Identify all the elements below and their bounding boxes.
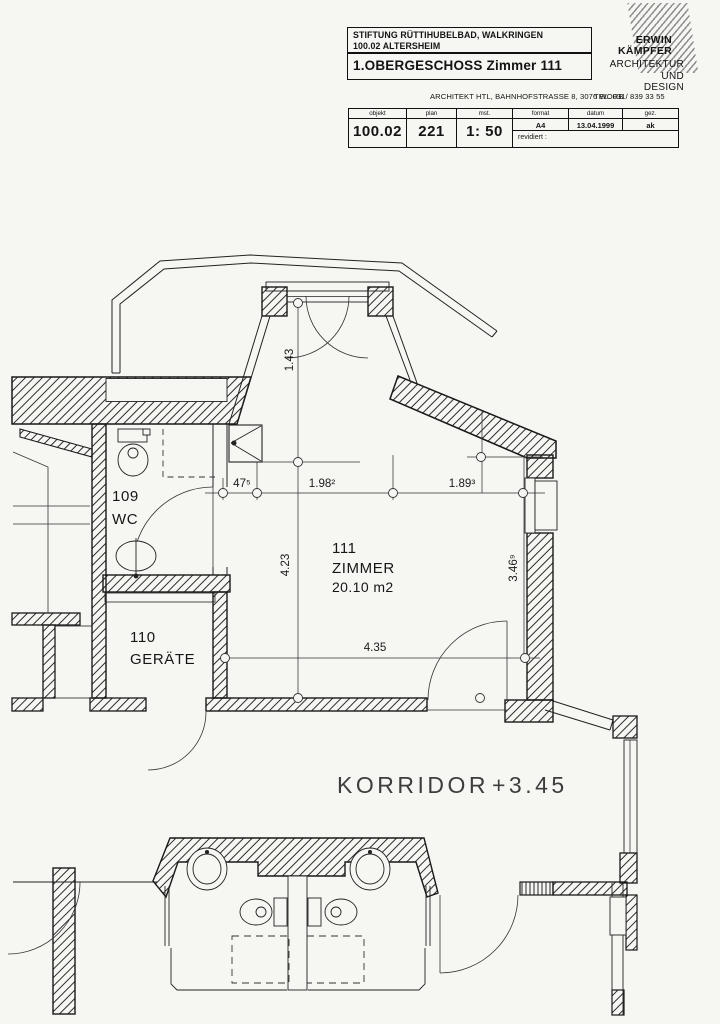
dim-bay-depth: 1.43 — [283, 349, 296, 372]
corridor-label: KORRIDOR — [337, 772, 489, 798]
right-wall — [390, 376, 557, 722]
header-mst: mst. — [457, 109, 513, 119]
drawing-title-box: 1.OBERGESCHOSS Zimmer 111 — [347, 52, 592, 80]
bathroom-divider — [288, 876, 307, 990]
shower-dashed — [307, 936, 364, 983]
wall-corner-block — [505, 700, 553, 722]
value-datum: 13.04.1999 — [569, 119, 623, 131]
shaft — [55, 626, 92, 698]
wc-left-wall — [92, 424, 106, 698]
value-objekt: 100.02 — [349, 119, 407, 147]
architect-field: ARCHITEKTUR UND DESIGN — [610, 59, 684, 94]
header-plan: plan — [407, 109, 457, 119]
value-plan: 221 — [407, 119, 457, 147]
drawing-title: 1.OBERGESCHOSS Zimmer 111 — [353, 58, 591, 73]
corridor-door-swing — [440, 895, 518, 973]
corridor-window — [624, 740, 637, 853]
window-frame — [535, 481, 557, 530]
bay-door-swing-right — [306, 296, 368, 358]
project-line2: 100.02 ALTERSHEIM — [353, 41, 591, 52]
room-name-wc: WC — [112, 511, 138, 528]
room-number-wc: 109 — [112, 488, 139, 505]
room-geraete — [12, 592, 427, 770]
room-number-zimmer: 111 — [332, 540, 357, 557]
wc-lintel — [106, 379, 227, 402]
value-format: A4 — [513, 119, 569, 131]
toilet — [240, 898, 287, 926]
room-number-geraete: 110 — [130, 629, 156, 646]
header-gez: gez. — [623, 109, 678, 119]
threshold — [520, 882, 553, 895]
bottom-wall — [206, 698, 427, 711]
window-glazing — [525, 478, 535, 533]
corridor-level: +3.45 — [492, 772, 568, 798]
shower-dashed — [232, 936, 289, 983]
dim-depth-right: 3.46⁹ — [507, 554, 520, 582]
shower-dashed — [163, 429, 215, 477]
architect-phone: TEL. 031/ 839 33 55 — [594, 92, 665, 101]
toilet — [308, 898, 357, 926]
room-name-geraete: GERÄTE — [130, 651, 195, 668]
bay-window — [229, 282, 417, 424]
bathroom-block — [153, 838, 438, 990]
neighbour-lines — [13, 452, 90, 613]
left-pier — [53, 868, 75, 1014]
architect-name: ERWIN KÄMPFER — [618, 35, 672, 57]
corridor-right — [440, 700, 637, 1015]
header-objekt: objekt — [349, 109, 407, 119]
wc-right-wall — [213, 424, 227, 575]
revised-label: revidiert : — [513, 131, 678, 147]
diagonal-wall — [390, 376, 556, 458]
dim-chain-c: 1.89³ — [449, 477, 476, 490]
geraete-right-wall — [213, 592, 227, 698]
toilet — [118, 429, 150, 476]
sink — [187, 848, 227, 890]
bay-side-walls — [229, 316, 417, 424]
architect-name-line2: KÄMPFER — [618, 46, 672, 57]
sink — [350, 848, 390, 890]
corridor-left — [8, 868, 157, 1014]
dim-chain-b: 1.98² — [309, 477, 336, 490]
project-info-box: STIFTUNG RÜTTIHUBELBAD, WALKRINGEN 100.0… — [347, 27, 592, 54]
sink — [116, 538, 156, 578]
room-area-zimmer: 20.10 m2 — [332, 579, 394, 595]
geraete-door-swing — [148, 712, 206, 770]
bay-jamb-right — [368, 287, 393, 316]
title-block: ERWIN KÄMPFER ARCHITEKTUR UND DESIGN STI… — [0, 0, 720, 160]
dim-depth-left: 4.23 — [279, 554, 292, 577]
project-line1: STIFTUNG RÜTTIHUBELBAD, WALKRINGEN — [353, 30, 591, 41]
value-mst: 1: 50 — [457, 119, 513, 147]
header-datum: datum — [569, 109, 623, 119]
room-name-zimmer: ZIMMER — [332, 560, 395, 577]
info-table: objekt plan mst. format datum gez. 100.0… — [348, 108, 679, 148]
zimmer-door-swing — [428, 621, 507, 700]
value-gez: ak — [623, 119, 678, 131]
wc-bottom-wall — [103, 575, 230, 592]
bay-jamb-left — [262, 287, 287, 316]
zimmer-door — [428, 621, 507, 700]
dim-width-bottom: 4.35 — [364, 641, 387, 654]
header-format: format — [513, 109, 569, 119]
dim-chain-a: 47⁵ — [233, 477, 251, 490]
wall-sliver-left — [20, 429, 92, 457]
duct-symbol — [229, 425, 262, 462]
wall-niche — [105, 593, 215, 602]
